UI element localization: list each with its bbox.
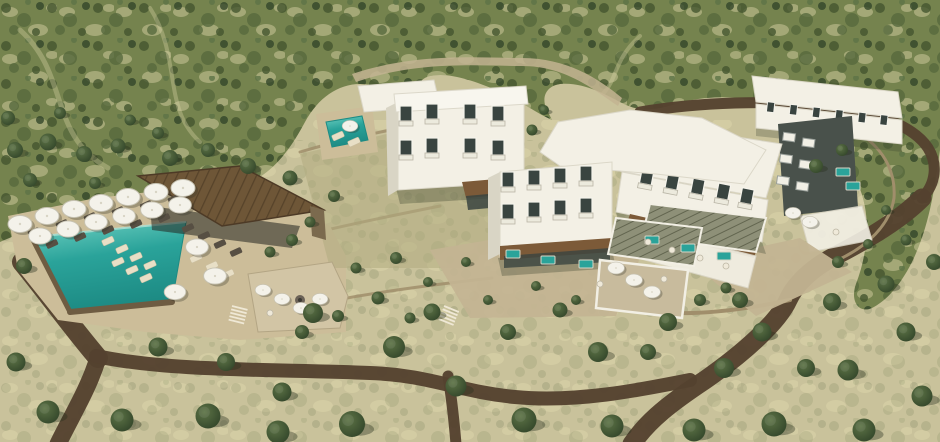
rendering-canvas [0, 0, 940, 442]
balcony [780, 154, 793, 164]
resort-aerial-rendering [0, 0, 940, 442]
table [723, 263, 729, 269]
balcony-window [501, 204, 515, 224]
table [697, 255, 703, 261]
table [833, 229, 839, 235]
table [645, 239, 651, 245]
balcony-window [579, 166, 593, 186]
plunge-pool [506, 250, 520, 258]
plunge-pool [681, 244, 695, 252]
balcony-window [527, 170, 541, 190]
side-face [488, 172, 500, 260]
balcony-window [425, 138, 439, 158]
plunge-pool [846, 182, 860, 190]
balcony-window [399, 106, 413, 126]
table [661, 276, 667, 282]
balcony [783, 132, 796, 142]
balcony-window [463, 104, 477, 124]
window [789, 104, 797, 115]
table [597, 281, 603, 287]
balcony-window [491, 140, 505, 160]
plunge-pool [717, 252, 731, 260]
side-face [386, 102, 398, 196]
plunge-pool [541, 256, 555, 264]
balcony-window [399, 140, 413, 160]
balcony-window [425, 104, 439, 124]
balcony-window [553, 168, 567, 188]
balcony-window [463, 138, 477, 158]
window [812, 107, 820, 118]
balcony [776, 176, 789, 186]
balcony [802, 138, 815, 148]
window [766, 102, 774, 113]
plunge-pool [836, 168, 850, 176]
plunge-pool [579, 260, 593, 268]
balcony-window [491, 106, 505, 126]
balcony-window [553, 200, 567, 220]
fire-pit-bowl [298, 298, 302, 302]
window [880, 115, 888, 126]
table [267, 310, 273, 316]
balcony-window [579, 198, 593, 218]
table [669, 247, 675, 253]
window [858, 112, 866, 123]
balcony [796, 182, 809, 192]
balcony-window [501, 172, 515, 192]
balcony-window [527, 202, 541, 222]
